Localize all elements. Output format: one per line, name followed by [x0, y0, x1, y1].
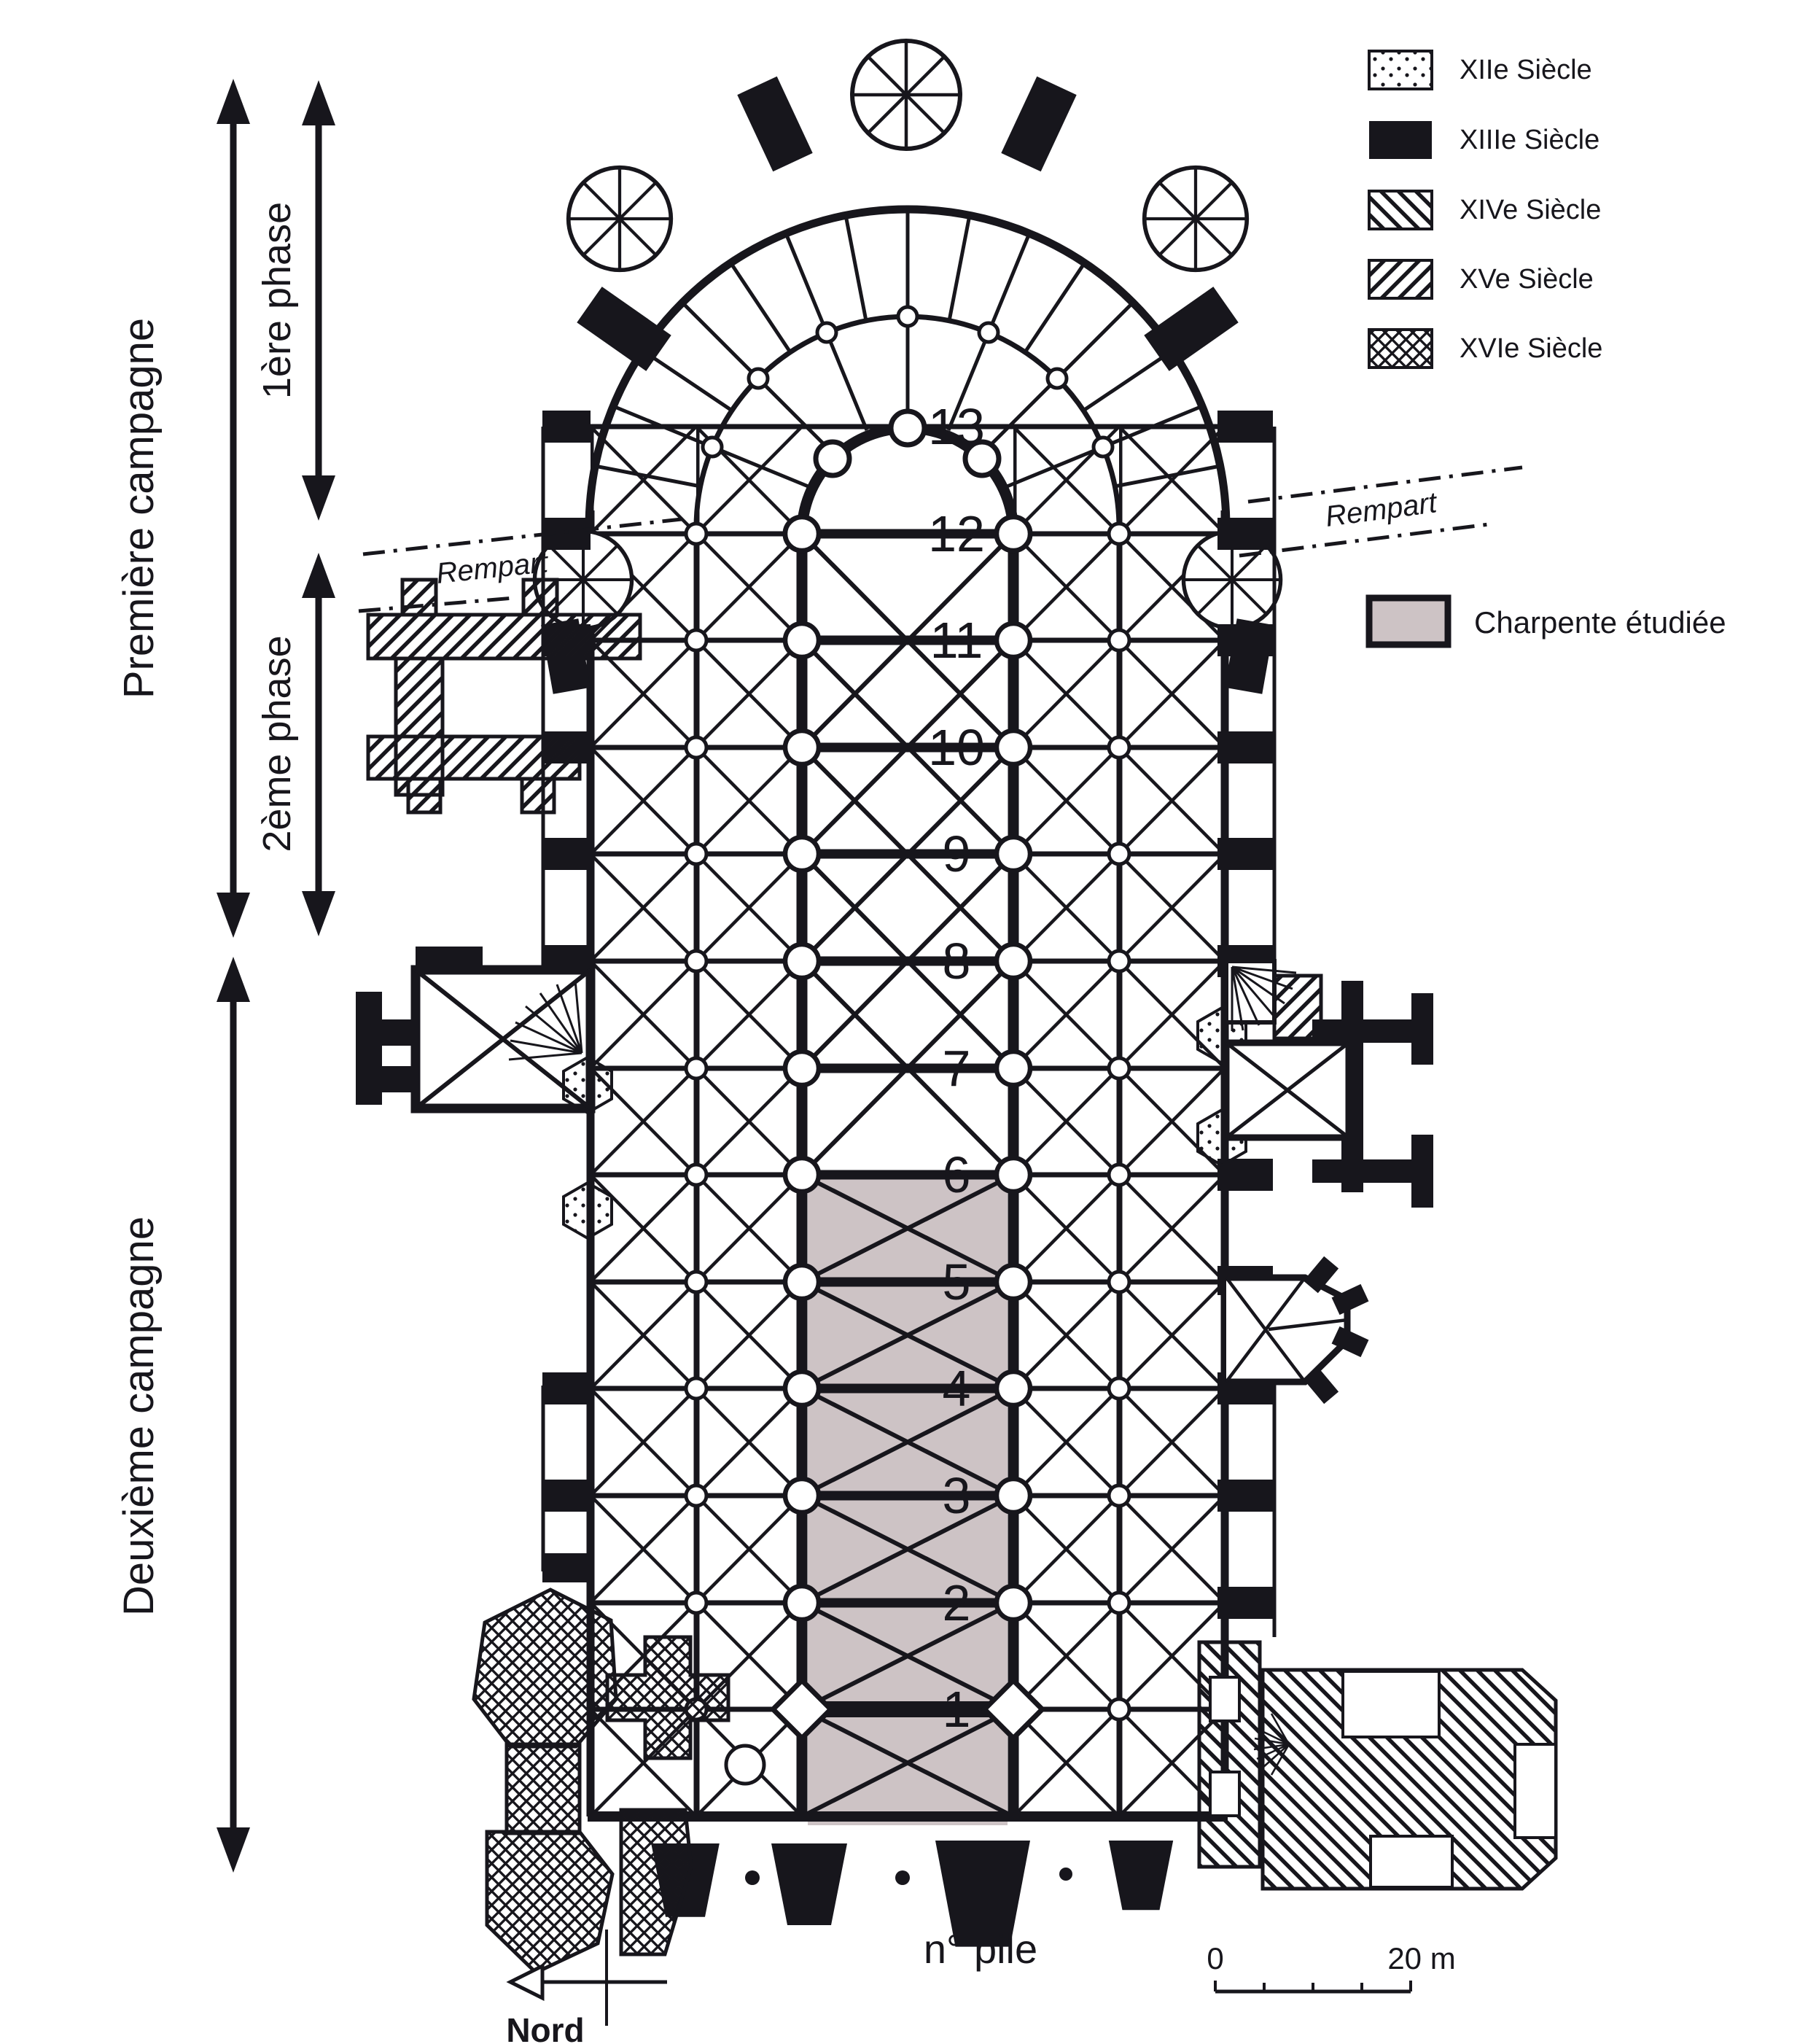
dotted-pier-icon — [564, 1183, 612, 1238]
arrowhead-up-icon — [217, 957, 250, 1002]
pier-number-5: 5 — [943, 1254, 971, 1310]
pile-number-caption: n° pile — [924, 1926, 1037, 1972]
scale-start-label: 0 — [1207, 1941, 1223, 1975]
legend: XIIe Siècle XIIIe Siècle XIVe Siècle XVe… — [1369, 51, 1726, 645]
label-phase2: 2ème phase — [255, 635, 299, 852]
west-facade — [651, 1841, 1173, 1947]
arrowhead-down-icon — [302, 891, 335, 936]
arrow-phase2 — [302, 553, 335, 936]
legend-label-xiii: XIIIe Siècle — [1460, 125, 1599, 155]
arrow-deuxieme-campagne — [217, 957, 250, 1873]
scale-bar: 0 20 m — [1207, 1941, 1455, 1991]
legend-label-xii: XIIe Siècle — [1460, 55, 1592, 85]
arrowhead-down-icon — [217, 1827, 250, 1873]
pier-number-13: 13 — [928, 398, 985, 455]
dotted-pier-icon — [564, 1057, 612, 1113]
chapel-northeast-icon — [569, 168, 671, 271]
legend-swatch-xiii-icon — [1369, 121, 1432, 159]
pier-number-8: 8 — [943, 933, 971, 990]
legend-item-xiv: XIVe Siècle — [1369, 191, 1601, 229]
legend-swatch-xv-icon — [1369, 260, 1432, 298]
pier-number-10: 10 — [928, 719, 985, 776]
campaign-annotations: Première campagne 1ère phase 2ème phase … — [115, 79, 335, 1873]
label-phase1: 1ère phase — [255, 202, 299, 399]
polygonal-chapel — [1226, 1278, 1347, 1382]
pier-number-3: 3 — [943, 1467, 971, 1524]
pier-number-12: 12 — [928, 505, 985, 562]
rempart-line — [1239, 524, 1495, 556]
pier-number-1: 1 — [943, 1681, 971, 1738]
arrow-phase1 — [302, 80, 335, 521]
cathedral-plan-figure: XIIe Siècle XIIIe Siècle XIVe Siècle XVe… — [0, 0, 1808, 2044]
legend-swatch-xii-icon — [1369, 51, 1432, 89]
legend-swatch-xiv-icon — [1369, 191, 1432, 229]
arrow-premiere-campagne — [217, 79, 250, 938]
legend-item-xii: XIIe Siècle — [1369, 51, 1592, 89]
north-label: Nord — [506, 2011, 584, 2044]
label-deuxieme-campagne: Deuxième campagne — [115, 1216, 163, 1616]
north-arrowhead-icon — [510, 1966, 542, 1998]
legend-label-xvi: XVIe Siècle — [1460, 333, 1602, 364]
label-premiere-campagne: Première campagne — [115, 318, 163, 699]
chapel-southeast-icon — [1145, 168, 1247, 271]
legend-item-xvi: XVIe Siècle — [1369, 330, 1602, 368]
rempart-label-right: Rempart — [1323, 486, 1440, 533]
pier-number-9: 9 — [943, 825, 971, 882]
arrowhead-up-icon — [302, 80, 335, 125]
legend-swatch-charpente-icon — [1369, 598, 1448, 645]
pier-number-2: 2 — [943, 1574, 971, 1631]
legend-item-charpente: Charpente étudiée — [1369, 598, 1726, 645]
pier-number-7: 7 — [943, 1040, 971, 1097]
chapel-axial-icon — [852, 41, 960, 149]
arrowhead-up-icon — [302, 553, 335, 598]
legend-item-xiii: XIIIe Siècle — [1369, 121, 1599, 159]
legend-label-xv: XVe Siècle — [1460, 264, 1594, 295]
arrowhead-down-icon — [302, 475, 335, 521]
pier-number-11: 11 — [930, 612, 983, 669]
transept-left — [356, 947, 591, 1108]
pier-number-4: 4 — [943, 1360, 971, 1417]
legend-item-xv: XVe Siècle — [1369, 260, 1594, 298]
scale-end-label: 20 m — [1387, 1941, 1455, 1975]
pier-number-6: 6 — [943, 1146, 971, 1203]
arrowhead-up-icon — [217, 79, 250, 124]
arrowhead-down-icon — [217, 893, 250, 938]
legend-label-xiv: XIVe Siècle — [1460, 195, 1601, 225]
buildings-southwest-xiv — [1199, 1642, 1556, 1889]
legend-swatch-xvi-icon — [1369, 330, 1432, 368]
legend-label-charpente: Charpente étudiée — [1474, 605, 1726, 640]
